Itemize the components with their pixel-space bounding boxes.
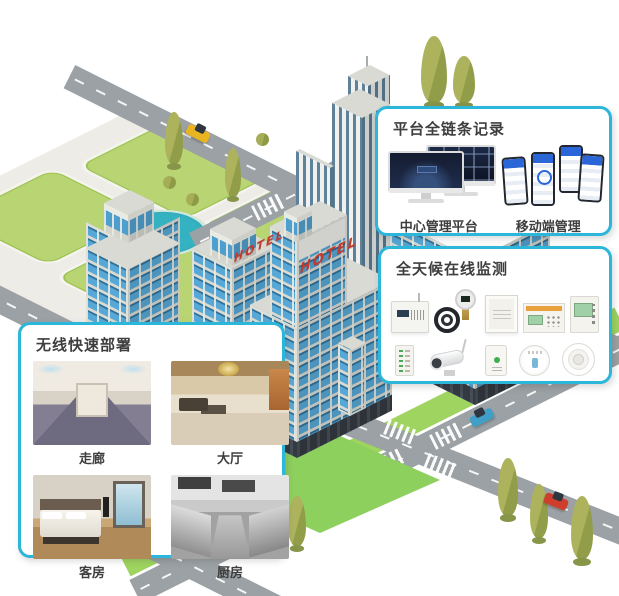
- metal-enclosure-icon: [485, 295, 518, 333]
- relay-module-icon: [523, 303, 565, 333]
- bullet-camera-icon: [426, 342, 474, 376]
- monitoring-panel: 全天候在线监测: [378, 246, 612, 384]
- pressure-sensor-icon: [434, 289, 480, 333]
- tree-icon: [421, 36, 447, 110]
- tree-icon: [165, 112, 183, 170]
- kitchen-photo: [171, 475, 289, 559]
- photo-cell: 走廊: [33, 361, 151, 471]
- desktop-monitors-icon: [388, 145, 495, 211]
- smart-breaker-icon: [485, 345, 507, 376]
- mobile-phones-icon: [503, 145, 601, 211]
- tree-icon: [453, 56, 475, 108]
- guest-room-photo: [33, 475, 151, 559]
- photo-cell: 厨房: [171, 475, 289, 585]
- corridor-caption: 走廊: [33, 448, 151, 467]
- gas-detector-icon: [519, 345, 550, 376]
- deployment-title: 无线快速部署: [36, 334, 282, 355]
- tree-icon: [498, 458, 518, 522]
- lobby-photo: [171, 361, 289, 445]
- bush-icon: [163, 176, 176, 189]
- center-platform-label: 中心管理平台: [384, 216, 494, 235]
- mobile-management-label: 移动端管理: [494, 216, 604, 235]
- kitchen-caption: 厨房: [171, 562, 289, 581]
- guest-room-caption: 客房: [33, 562, 151, 581]
- bush-icon: [256, 133, 269, 146]
- tree-icon: [288, 496, 306, 552]
- lobby-caption: 大厅: [171, 448, 289, 467]
- photo-cell: 大厅: [171, 361, 289, 471]
- lcd-control-panel-icon: [570, 296, 599, 333]
- hotel-wing: [338, 344, 350, 416]
- deployment-panel: 无线快速部署 走廊 大厅 客房: [18, 322, 285, 558]
- infographic-stage: HOTEL HOTEL 平台全链条记录: [0, 0, 619, 596]
- photo-cell: 客房: [33, 475, 151, 585]
- monitoring-title: 全天候在线监测: [396, 258, 609, 279]
- corridor-photo: [33, 361, 151, 445]
- records-title: 平台全链条记录: [393, 118, 609, 139]
- tree-icon: [225, 148, 241, 202]
- io-module-icon: [395, 345, 414, 376]
- tree-icon: [571, 496, 593, 566]
- records-panel: 平台全链条记录 中心管理平台 移动端管理: [375, 106, 612, 236]
- hotel-wing: [350, 342, 366, 416]
- wireless-alarm-host-icon: [391, 301, 429, 333]
- bush-icon: [186, 193, 199, 206]
- smoke-detector-icon: [562, 343, 595, 376]
